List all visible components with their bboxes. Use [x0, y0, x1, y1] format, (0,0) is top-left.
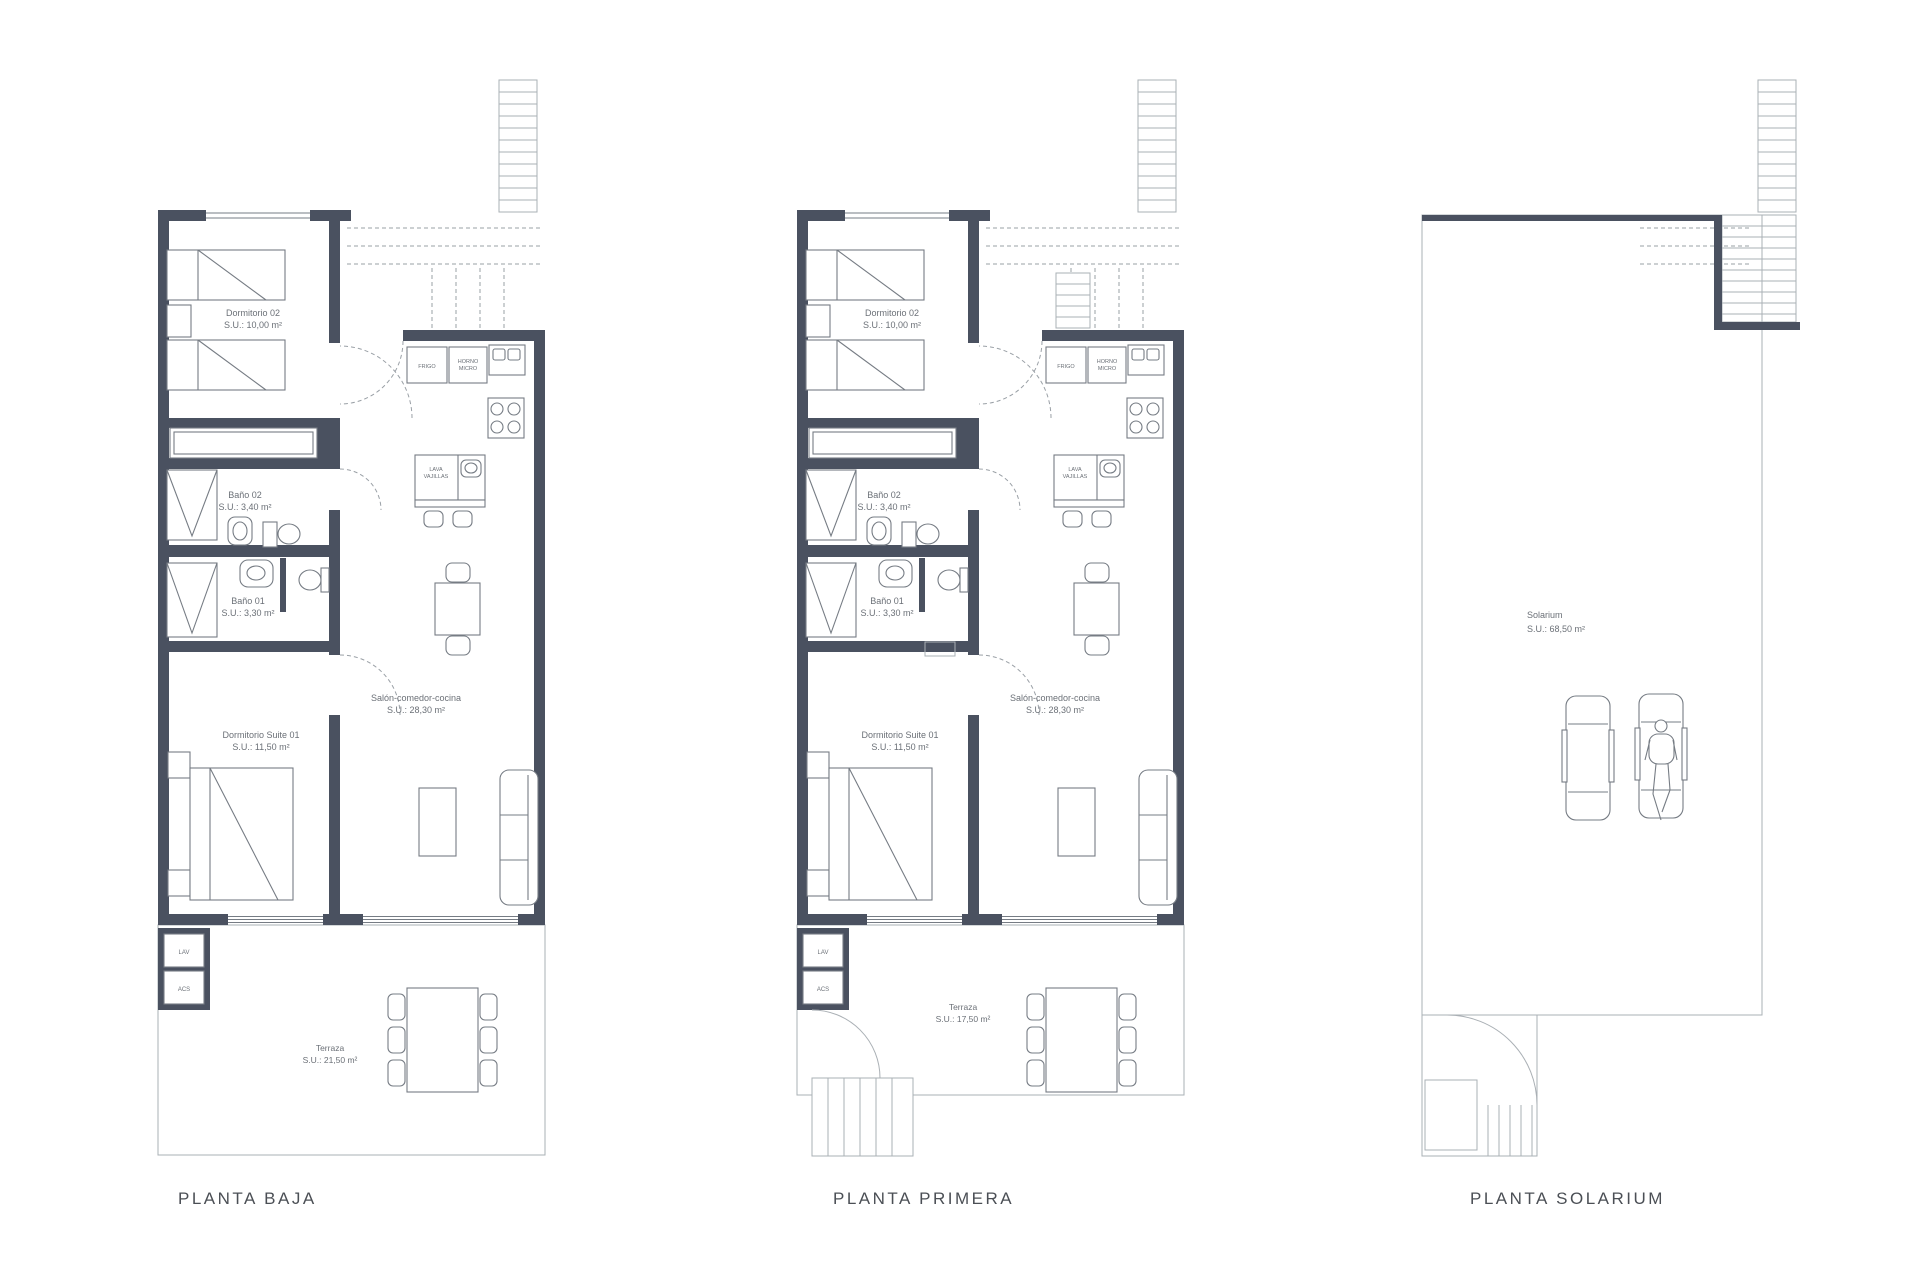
plan-title-solarium: PLANTA SOLARIUM	[1470, 1189, 1665, 1208]
terrace-utility-closet	[158, 928, 210, 1010]
terraza-label-area: S.U.: 21,50 m²	[303, 1055, 358, 1065]
overhang-dashed-lines	[986, 228, 1179, 264]
floor-plans-svg: LAV ACS	[0, 0, 1920, 1280]
apartment-unit-floorplan	[158, 210, 545, 925]
plan-planta-solarium: Solarium S.U.: 68,50 m² PLANTA SOLARIUM	[1422, 80, 1800, 1208]
solarium-label-area: S.U.: 68,50 m²	[1527, 624, 1585, 634]
garden-stair	[812, 1010, 913, 1156]
architectural-drawing-sheet: LAV ACS	[0, 0, 1920, 1280]
solarium-label-name: Solarium	[1527, 610, 1563, 620]
terrace-utility-closet	[797, 928, 849, 1010]
plan-planta-primera: Terraza S.U.: 17,50 m² PLANTA PRIMERA	[797, 80, 1184, 1208]
parapet-wall	[1422, 215, 1722, 221]
stair-hatch	[1425, 1080, 1477, 1150]
lower-terrace-stair	[1422, 1015, 1537, 1156]
interior-stair-arrival	[1056, 273, 1090, 328]
stair-enclosure	[1714, 215, 1800, 330]
exterior-stair-run	[1758, 80, 1796, 212]
overhang-dashed-lines	[347, 228, 540, 264]
apartment-unit-floorplan	[797, 210, 1184, 925]
terraza-label-name: Terraza	[949, 1002, 978, 1012]
plan-title-primera: PLANTA PRIMERA	[833, 1189, 1014, 1208]
solarium-deck: Solarium S.U.: 68,50 m²	[1422, 215, 1800, 1015]
overhang-dashed-columns	[432, 268, 504, 328]
terrace-dining-set	[388, 988, 497, 1092]
plan-title-baja: PLANTA BAJA	[178, 1189, 317, 1208]
terraza-label-area: S.U.: 17,50 m²	[936, 1014, 991, 1024]
terraza-label-name: Terraza	[316, 1043, 345, 1053]
terrace: Terraza S.U.: 21,50 m²	[158, 925, 545, 1155]
terrace-dining-set	[1027, 988, 1136, 1092]
plan-planta-baja: Terraza S.U.: 21,50 m² PLANTA BAJA	[158, 80, 545, 1208]
sun-lounger	[1562, 696, 1614, 820]
exterior-stair-run	[1138, 80, 1176, 212]
exterior-stair-run	[499, 80, 537, 212]
terrace: Terraza S.U.: 17,50 m²	[797, 925, 1184, 1156]
